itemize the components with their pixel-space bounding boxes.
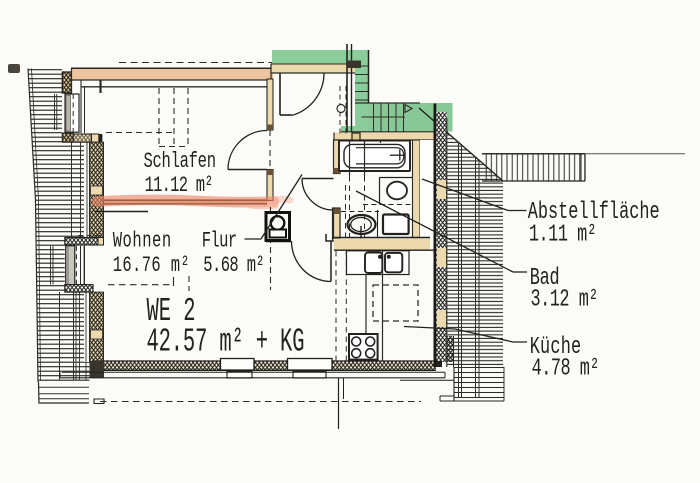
svg-text:42.57 m² + KG: 42.57 m² + KG: [147, 324, 305, 361]
svg-text:3.12 m²: 3.12 m²: [531, 286, 599, 314]
svg-text:5.68 m²: 5.68 m²: [203, 252, 264, 278]
svg-text:16.76 m²: 16.76 m²: [113, 252, 190, 278]
svg-text:11.12 m²: 11.12 m²: [145, 172, 214, 198]
svg-text:1.11 m²: 1.11 m²: [529, 221, 597, 249]
svg-text:4.78 m²: 4.78 m²: [532, 355, 600, 383]
svg-text:Wohnen: Wohnen: [113, 228, 172, 254]
svg-text:Flur: Flur: [202, 228, 238, 254]
svg-text:Schlafen: Schlafen: [144, 148, 217, 174]
